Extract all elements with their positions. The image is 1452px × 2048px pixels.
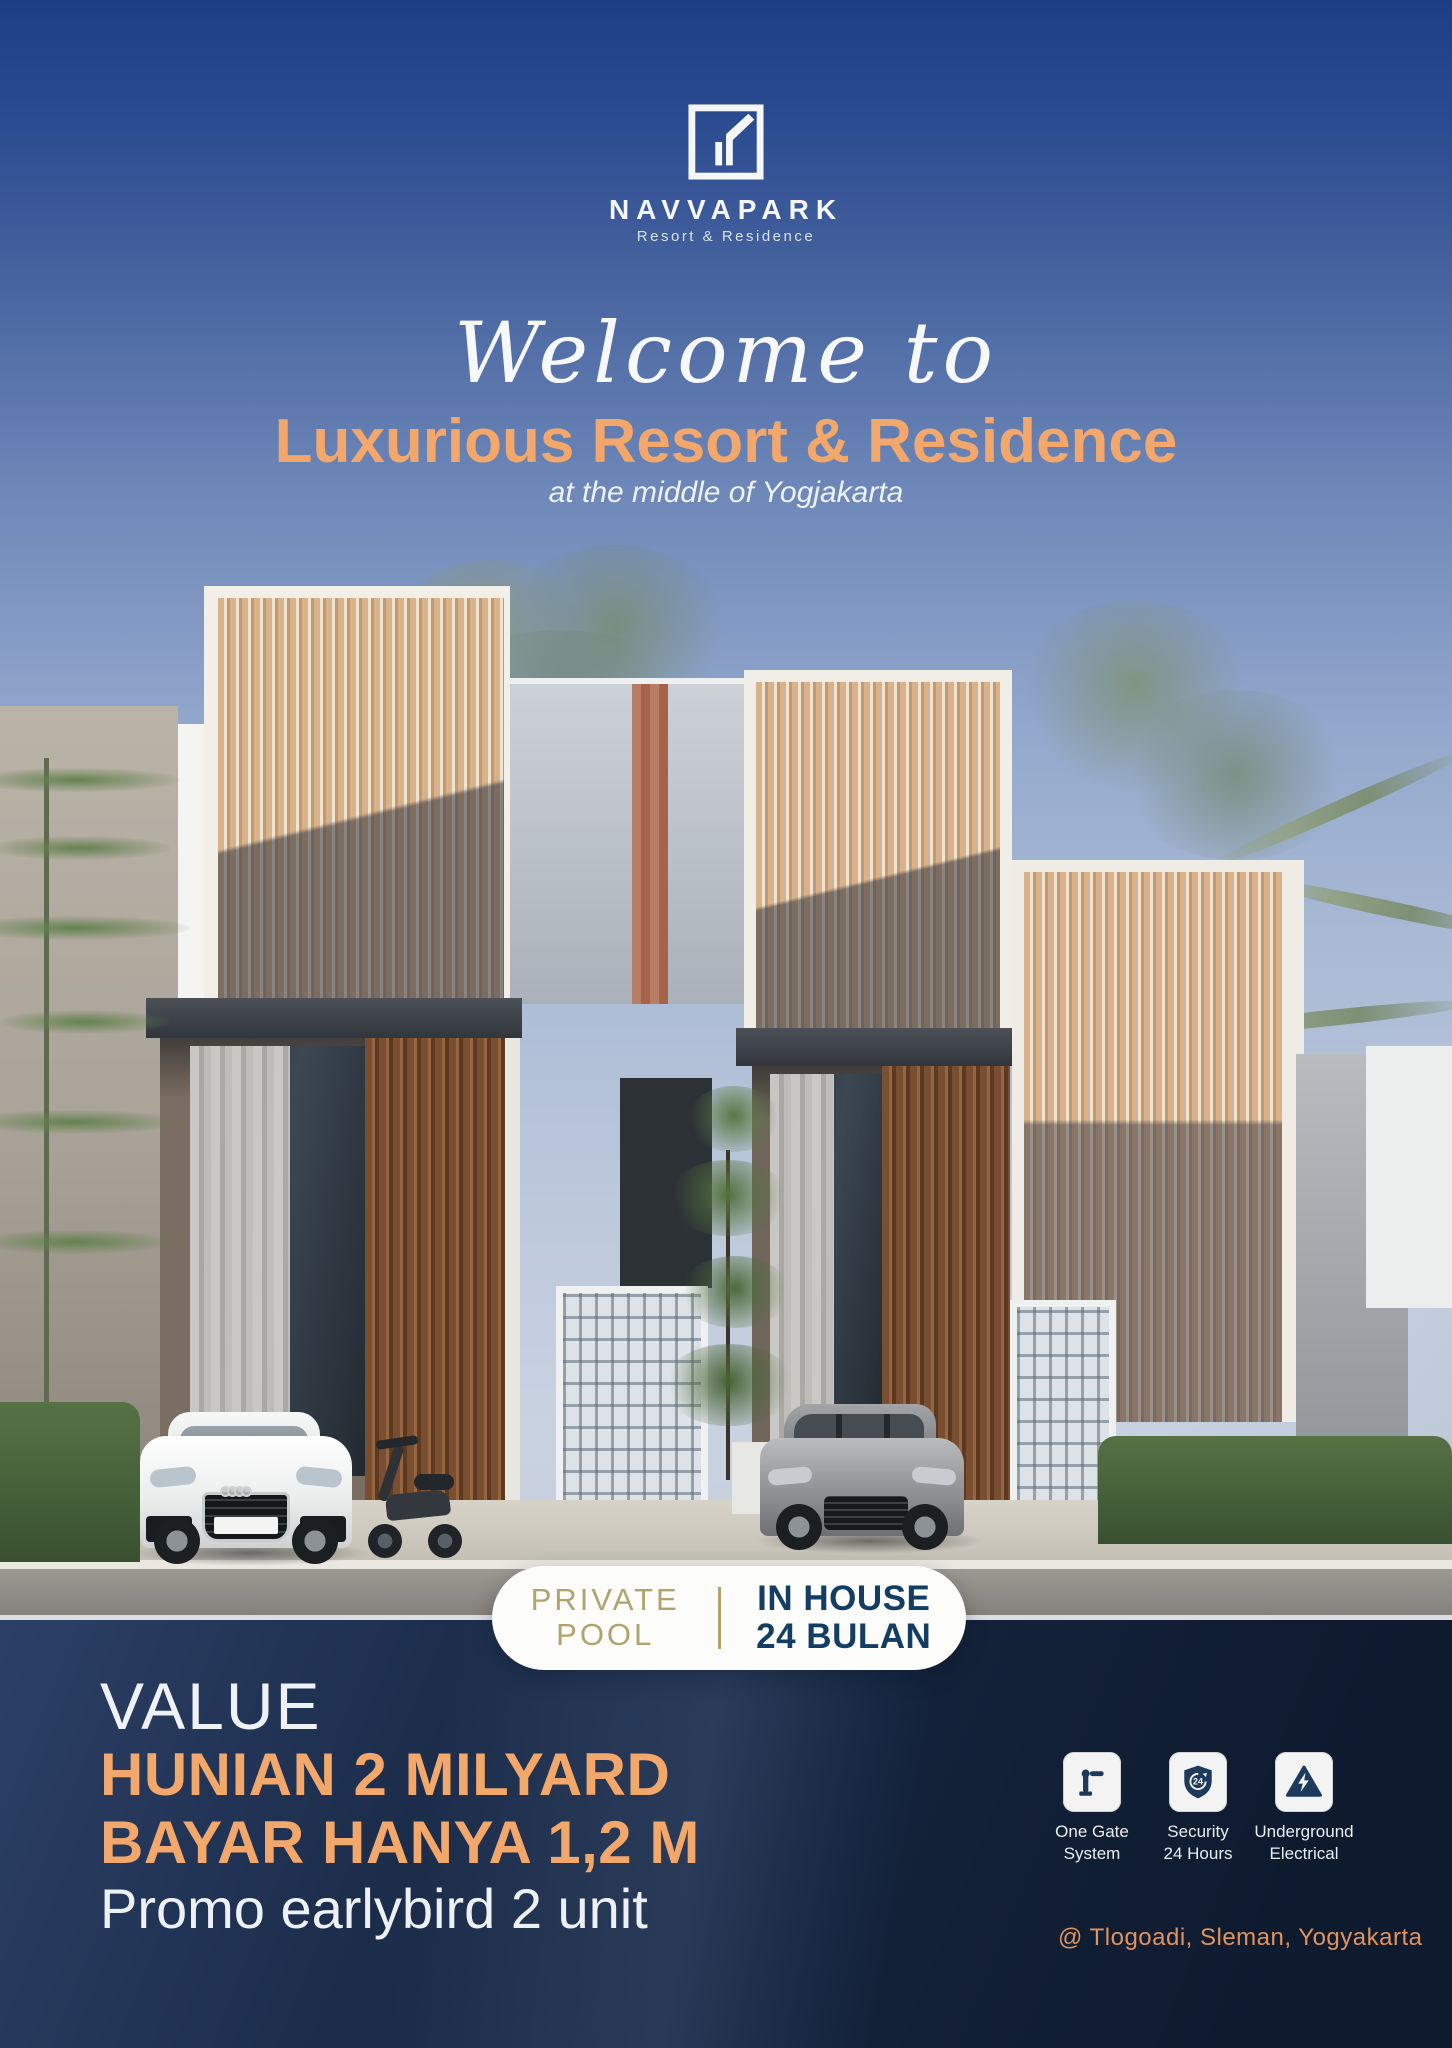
offer-line-1: HUNIAN 2 MILYARD	[100, 1741, 860, 1809]
svg-text:24: 24	[1193, 1777, 1203, 1787]
topiary-foliage	[680, 1256, 790, 1328]
offer-line-2: BAYAR HANYA 1,2 M	[100, 1809, 860, 1877]
audi-rings-badge	[224, 1486, 270, 1498]
feature-label: Underground Electrical	[1254, 1821, 1353, 1865]
feature-one-gate-system: One Gate System	[1039, 1752, 1145, 1865]
gate-barrier-icon	[1073, 1763, 1111, 1801]
feature-tile	[1275, 1752, 1333, 1812]
left-house-side-wall	[0, 706, 178, 1462]
white-convertible-car	[140, 1378, 352, 1564]
electric-hazard-icon	[1285, 1763, 1323, 1801]
topiary-foliage	[668, 1160, 788, 1236]
topiary-foliage	[688, 1086, 780, 1152]
suv-grille	[824, 1496, 908, 1530]
feature-label: Security 24 Hours	[1164, 1821, 1233, 1865]
house-c-white-volume	[1366, 1046, 1452, 1308]
background-wood-strip	[632, 684, 668, 1004]
house-b-slat-screen	[756, 682, 1000, 1046]
car-license-plate	[214, 1517, 278, 1534]
hero-headline: Luxurious Resort & Residence	[0, 406, 1452, 477]
scooter-body	[385, 1489, 451, 1522]
offer-line-3: Promo earlybird 2 unit	[100, 1877, 860, 1942]
feature-underground-electrical: Underground Electrical	[1251, 1752, 1357, 1865]
feature-security-24-hours: 24 Security 24 Hours	[1145, 1752, 1251, 1865]
background-house	[510, 678, 750, 1004]
brand-name: NAVVAPARK	[0, 194, 1452, 226]
suv-wheel	[902, 1504, 948, 1550]
feature-tile: 24	[1169, 1752, 1227, 1812]
brand-tagline: Resort & Residence	[0, 228, 1452, 245]
private-pool-label: PRIVATE POOL	[492, 1583, 718, 1652]
scooter	[368, 1436, 466, 1562]
feature-label: One Gate System	[1055, 1821, 1129, 1865]
location-text: @ Tlogoadi, Sleman, Yogyakarta	[1058, 1924, 1422, 1952]
hedge	[1098, 1436, 1452, 1544]
scooter-wheel	[368, 1524, 402, 1558]
house-b-fascia	[736, 1028, 1024, 1066]
tree-canopy	[1120, 690, 1350, 860]
offer-block: VALUE HUNIAN 2 MILYARD BAYAR HANYA 1,2 M…	[100, 1672, 860, 1942]
hero-script-line: Welcome to	[0, 304, 1452, 402]
promo-poster: PRIVATE POOL IN HOUSE 24 BULAN VALUE HUN…	[0, 0, 1452, 2048]
feature-tile	[1063, 1752, 1121, 1812]
car-wheel	[154, 1518, 200, 1564]
feature-list: One Gate System 24 Security 24 Hours	[1039, 1752, 1357, 1865]
scooter-wheel	[428, 1524, 462, 1558]
shield-24-icon: 24	[1179, 1763, 1217, 1801]
in-house-label: IN HOUSE 24 BULAN	[721, 1580, 966, 1657]
suv-wheel	[776, 1504, 822, 1550]
offer-label: VALUE	[100, 1672, 860, 1741]
house-a-column	[505, 1038, 520, 1562]
amenity-badge: PRIVATE POOL IN HOUSE 24 BULAN	[492, 1566, 966, 1670]
tree-frond	[0, 1010, 170, 1034]
hedge	[0, 1402, 140, 1562]
hero-subheadline: at the middle of Yogjakarta	[0, 476, 1452, 510]
silver-suv-car	[760, 1376, 964, 1550]
scooter-seat	[414, 1474, 454, 1490]
house-a-fascia	[146, 998, 522, 1038]
car-wheel	[292, 1518, 338, 1564]
navvapark-logo-mark	[687, 102, 765, 182]
house-a-slat-screen	[218, 598, 504, 1002]
